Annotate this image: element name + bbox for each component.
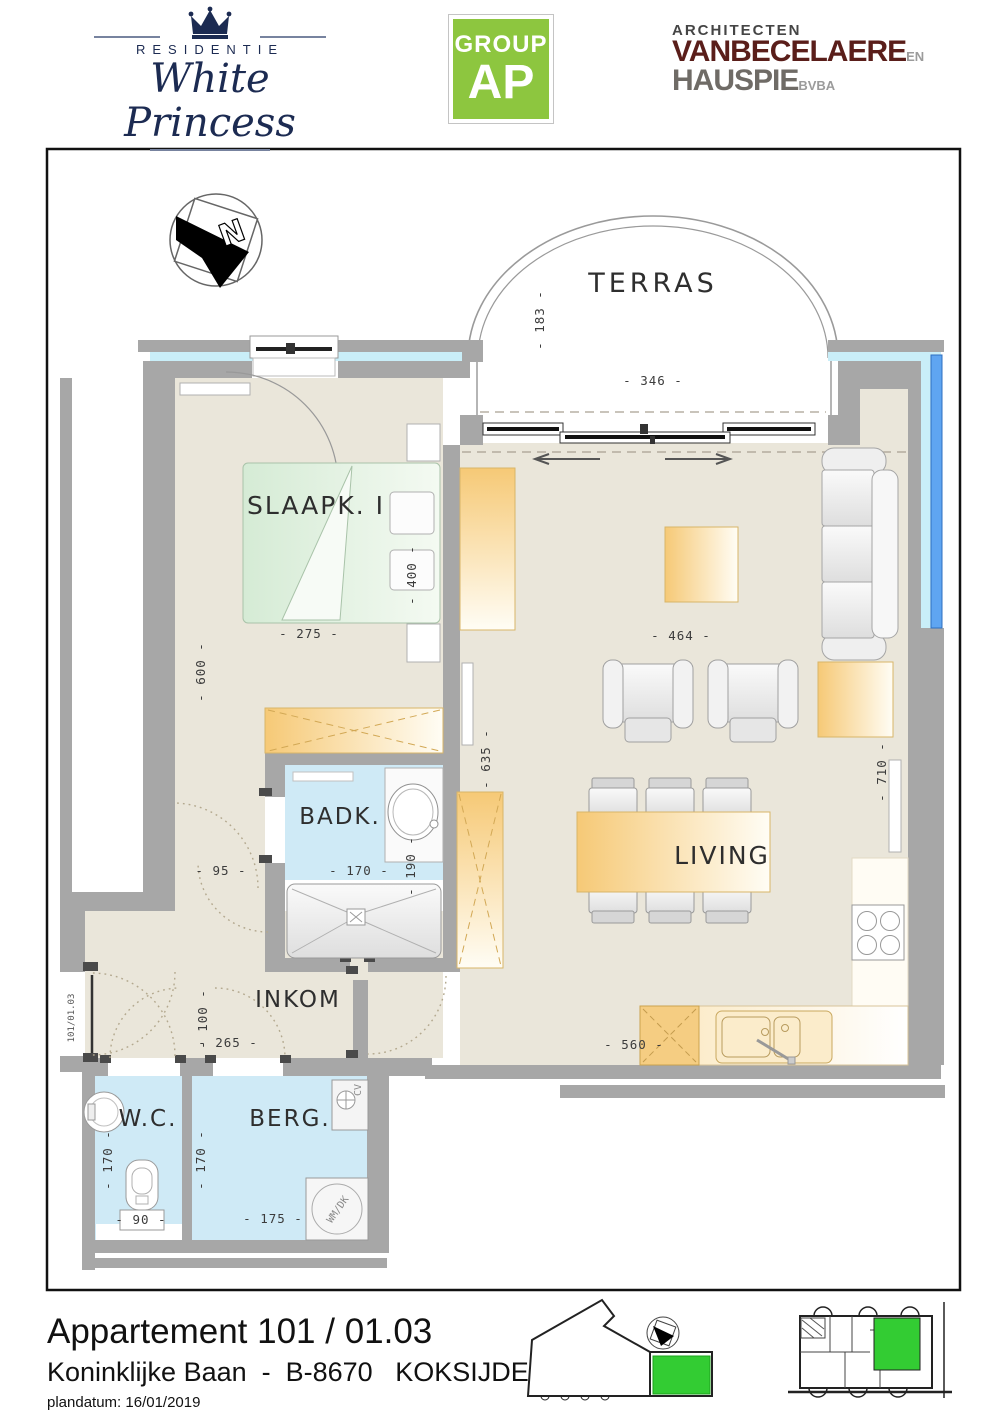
dining-chair — [589, 778, 637, 815]
dim-kast-depth: - 635 - — [478, 729, 493, 789]
highlight-unit — [874, 1318, 920, 1370]
crown-icon — [187, 6, 233, 40]
radiator — [180, 383, 250, 395]
dim-terras-depth: - 183 - — [532, 290, 547, 350]
room-label-slaapkamer: SLAAPK. I — [247, 491, 385, 520]
room-label-badkamer: BADK. — [299, 804, 381, 830]
room-label-inkom: INKOM — [255, 987, 341, 1013]
boiler-unit: CV — [332, 1080, 368, 1130]
dim-terras-width: - 346 - — [623, 373, 683, 388]
radiator — [889, 760, 901, 852]
room-label-wc: W.C. — [119, 1106, 178, 1132]
dim-slaapk-width: - 275 - — [279, 626, 339, 641]
dim-badk-width: - 170 - — [329, 863, 389, 878]
plan-date: plandatum: 16/01/2019 — [47, 1394, 200, 1411]
glazing-right — [921, 352, 932, 628]
living-niche-floor — [860, 389, 908, 445]
fridge — [640, 1006, 699, 1065]
residentie-label: RESIDENTIE — [80, 42, 340, 57]
radiator — [462, 663, 473, 745]
architect-bvba: BVBA — [798, 78, 835, 93]
dim-wc-depth: - 170 - — [100, 1130, 115, 1190]
coffee-table — [665, 527, 738, 602]
site-diagram-floorplate — [788, 1302, 952, 1398]
window-right — [931, 355, 942, 628]
dim-hal-width: - 95 - — [195, 863, 246, 878]
boiler-label: CV — [353, 1084, 364, 1096]
logo-underline — [150, 149, 270, 151]
entrance-door-label: 101/01.03 — [67, 994, 77, 1043]
room-label-terras: TERRAS — [587, 268, 718, 299]
wardrobe-living — [457, 792, 503, 968]
apartment-title: Appartement 101 / 01.03 — [47, 1312, 432, 1352]
ap-label: AP — [453, 59, 549, 107]
mini-compass-icon — [647, 1317, 679, 1349]
architects-logo: ARCHITECTEN VANBECELAEREEN HAUSPIEBVBA — [672, 24, 962, 95]
residence-logo: RESIDENTIE White Princess — [80, 6, 340, 151]
dim-berg-width: - 175 - — [243, 1211, 303, 1226]
dim-badk-depth: - 190 - — [403, 836, 418, 896]
cabinet-tall — [460, 468, 515, 630]
architect-name-2: HAUSPIE — [672, 64, 798, 97]
logo-line-right — [260, 36, 326, 38]
dining-chair — [646, 778, 694, 815]
nightstand — [407, 424, 440, 461]
dim-slaapk-depth: - 600 - — [193, 642, 208, 702]
site-diagram-overview — [528, 1300, 712, 1400]
kitchen-sink — [716, 1011, 832, 1064]
dim-living-depth: - 710 - — [874, 742, 889, 802]
dim-berg-depth: - 170 - — [193, 1130, 208, 1190]
room-label-living: LIVING — [674, 841, 770, 870]
architect-en: EN — [906, 49, 924, 64]
group-ap-badge: GROUP AP — [453, 19, 549, 119]
logo-line-left — [94, 36, 160, 38]
dim-keuken-width: - 560 - — [604, 1037, 664, 1052]
dim-wc-width: - 90 - — [115, 1212, 166, 1227]
wardrobe-hall — [265, 708, 443, 753]
highlight-unit — [653, 1356, 710, 1394]
bathroom-shelf — [293, 772, 353, 781]
pillow — [390, 492, 434, 534]
sofa — [822, 448, 898, 660]
dim-inkom-width: - 265 - — [198, 1035, 258, 1050]
room-label-berging: BERG. — [249, 1106, 330, 1132]
washing-machine: WM/DK — [306, 1178, 368, 1240]
dim-bed-width: - 400 - — [404, 545, 419, 605]
apartment-address: Koninklijke Baan - B-8670 KOKSIJDE — [47, 1357, 529, 1388]
page: RESIDENTIE White Princess GROUP AP ARCHI… — [0, 0, 1007, 1425]
side-table — [818, 662, 893, 737]
group-ap-logo: GROUP AP — [448, 14, 554, 124]
floor-plan: N — [0, 0, 1007, 1425]
nightstand — [407, 624, 440, 662]
dim-living-width: - 464 - — [651, 628, 711, 643]
group-label: GROUP — [453, 19, 549, 59]
brand-name: White Princess — [80, 57, 340, 145]
dining-chair — [703, 778, 751, 815]
stove — [852, 905, 904, 960]
